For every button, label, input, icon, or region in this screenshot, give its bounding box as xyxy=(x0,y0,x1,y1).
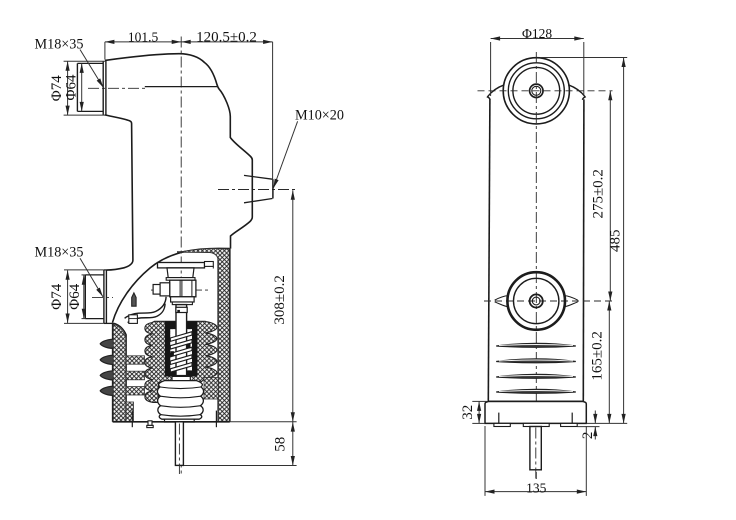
svg-text:120.5±0.2: 120.5±0.2 xyxy=(196,29,257,45)
svg-text:Φ74: Φ74 xyxy=(49,283,65,309)
svg-text:M10×20: M10×20 xyxy=(295,108,344,124)
svg-text:275±0.2: 275±0.2 xyxy=(591,169,607,218)
svg-text:Φ128: Φ128 xyxy=(522,26,552,41)
svg-text:Φ74: Φ74 xyxy=(49,75,65,101)
svg-text:308±0.2: 308±0.2 xyxy=(272,275,288,324)
svg-text:M18×35: M18×35 xyxy=(35,37,84,53)
svg-text:101.5: 101.5 xyxy=(128,29,159,44)
svg-text:Φ64: Φ64 xyxy=(67,283,83,309)
svg-text:32: 32 xyxy=(460,405,476,420)
svg-text:58: 58 xyxy=(273,437,289,452)
svg-text:485: 485 xyxy=(607,230,623,253)
svg-text:165±0.2: 165±0.2 xyxy=(589,331,605,380)
svg-text:2: 2 xyxy=(580,432,596,440)
svg-text:M18×35: M18×35 xyxy=(35,245,84,261)
svg-text:135: 135 xyxy=(526,480,547,495)
svg-text:Φ64: Φ64 xyxy=(63,74,79,100)
